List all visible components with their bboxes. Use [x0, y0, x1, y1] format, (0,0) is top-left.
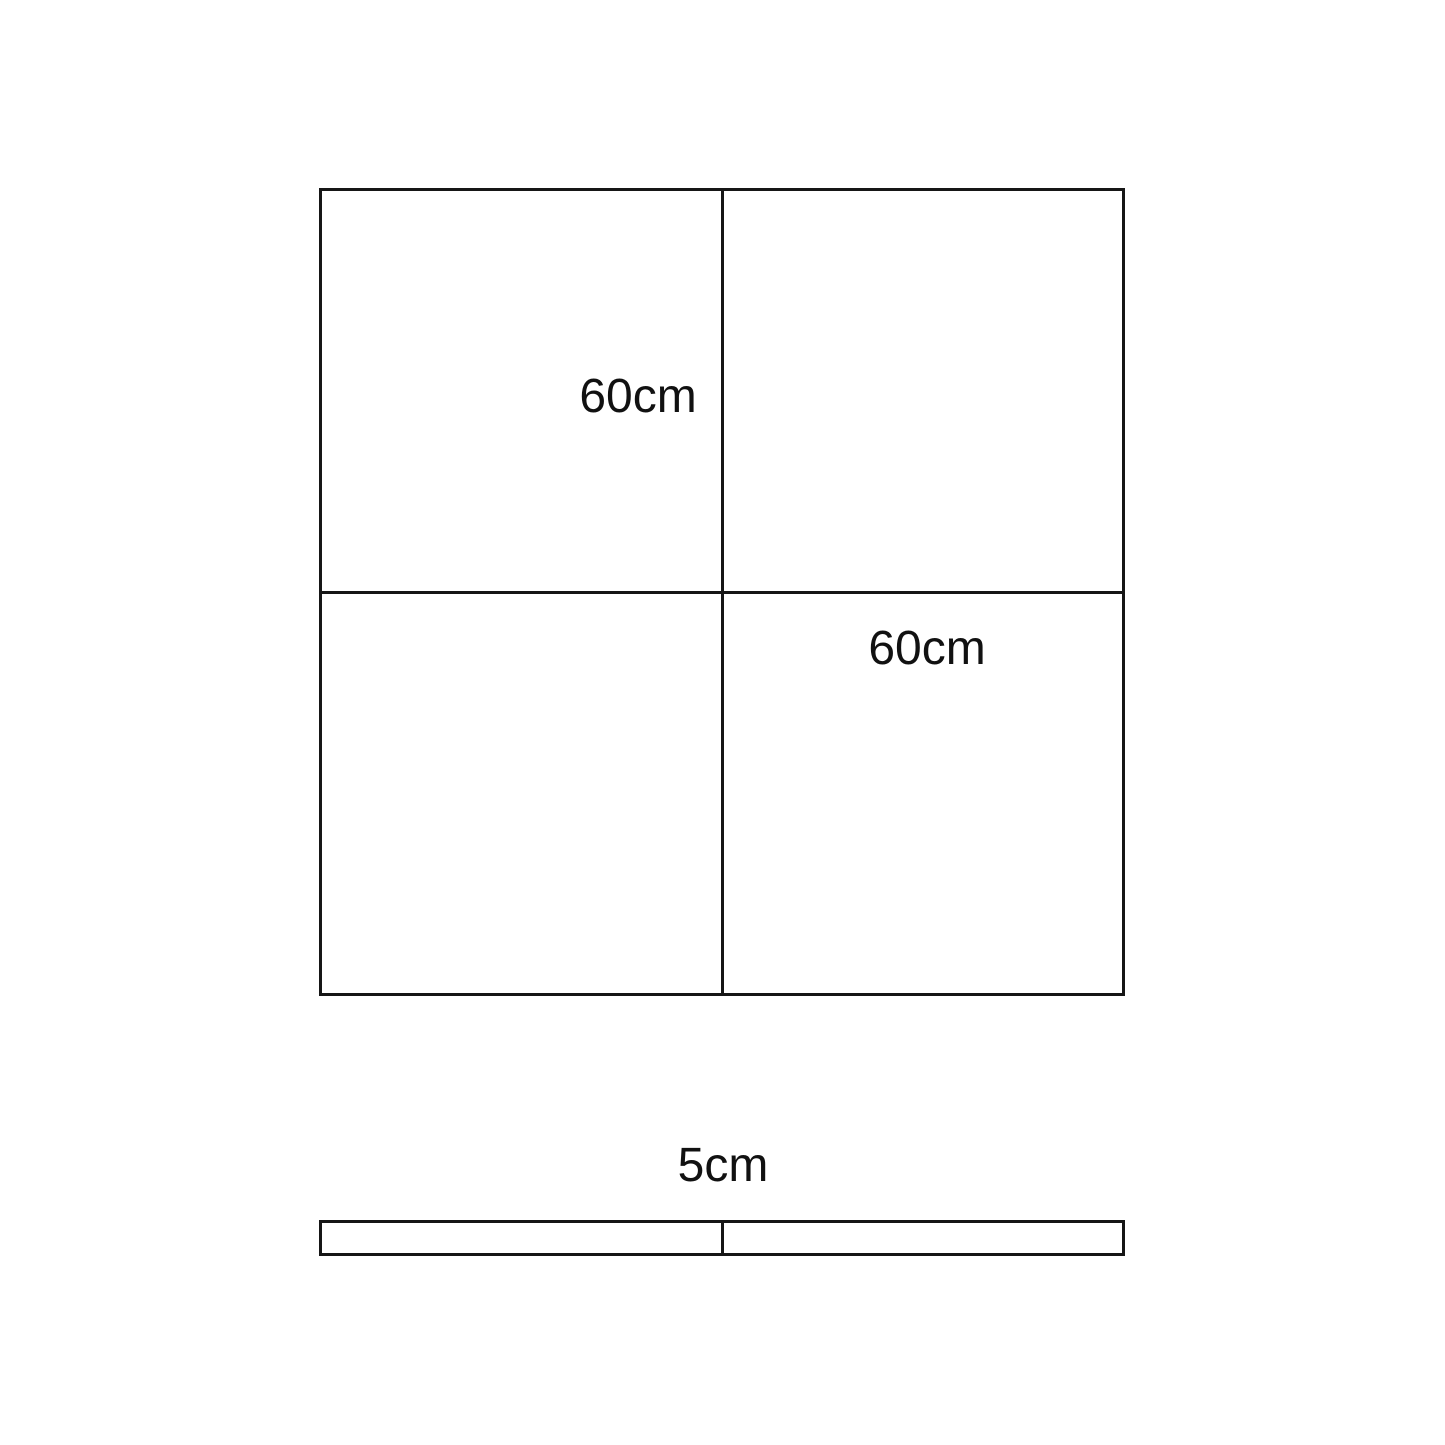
- square-dimension-label-bottom-right: 60cm: [868, 625, 985, 673]
- strip-figure: [319, 1220, 1125, 1256]
- square-dimension-label-top-left: 60cm: [579, 373, 696, 421]
- strip-vertical-divider: [721, 1223, 724, 1253]
- diagram-canvas: 60cm 60cm 5cm: [0, 0, 1445, 1445]
- square-figure: 60cm 60cm: [319, 188, 1125, 996]
- square-horizontal-divider: [322, 591, 1122, 594]
- strip-dimension-label: 5cm: [678, 1142, 769, 1190]
